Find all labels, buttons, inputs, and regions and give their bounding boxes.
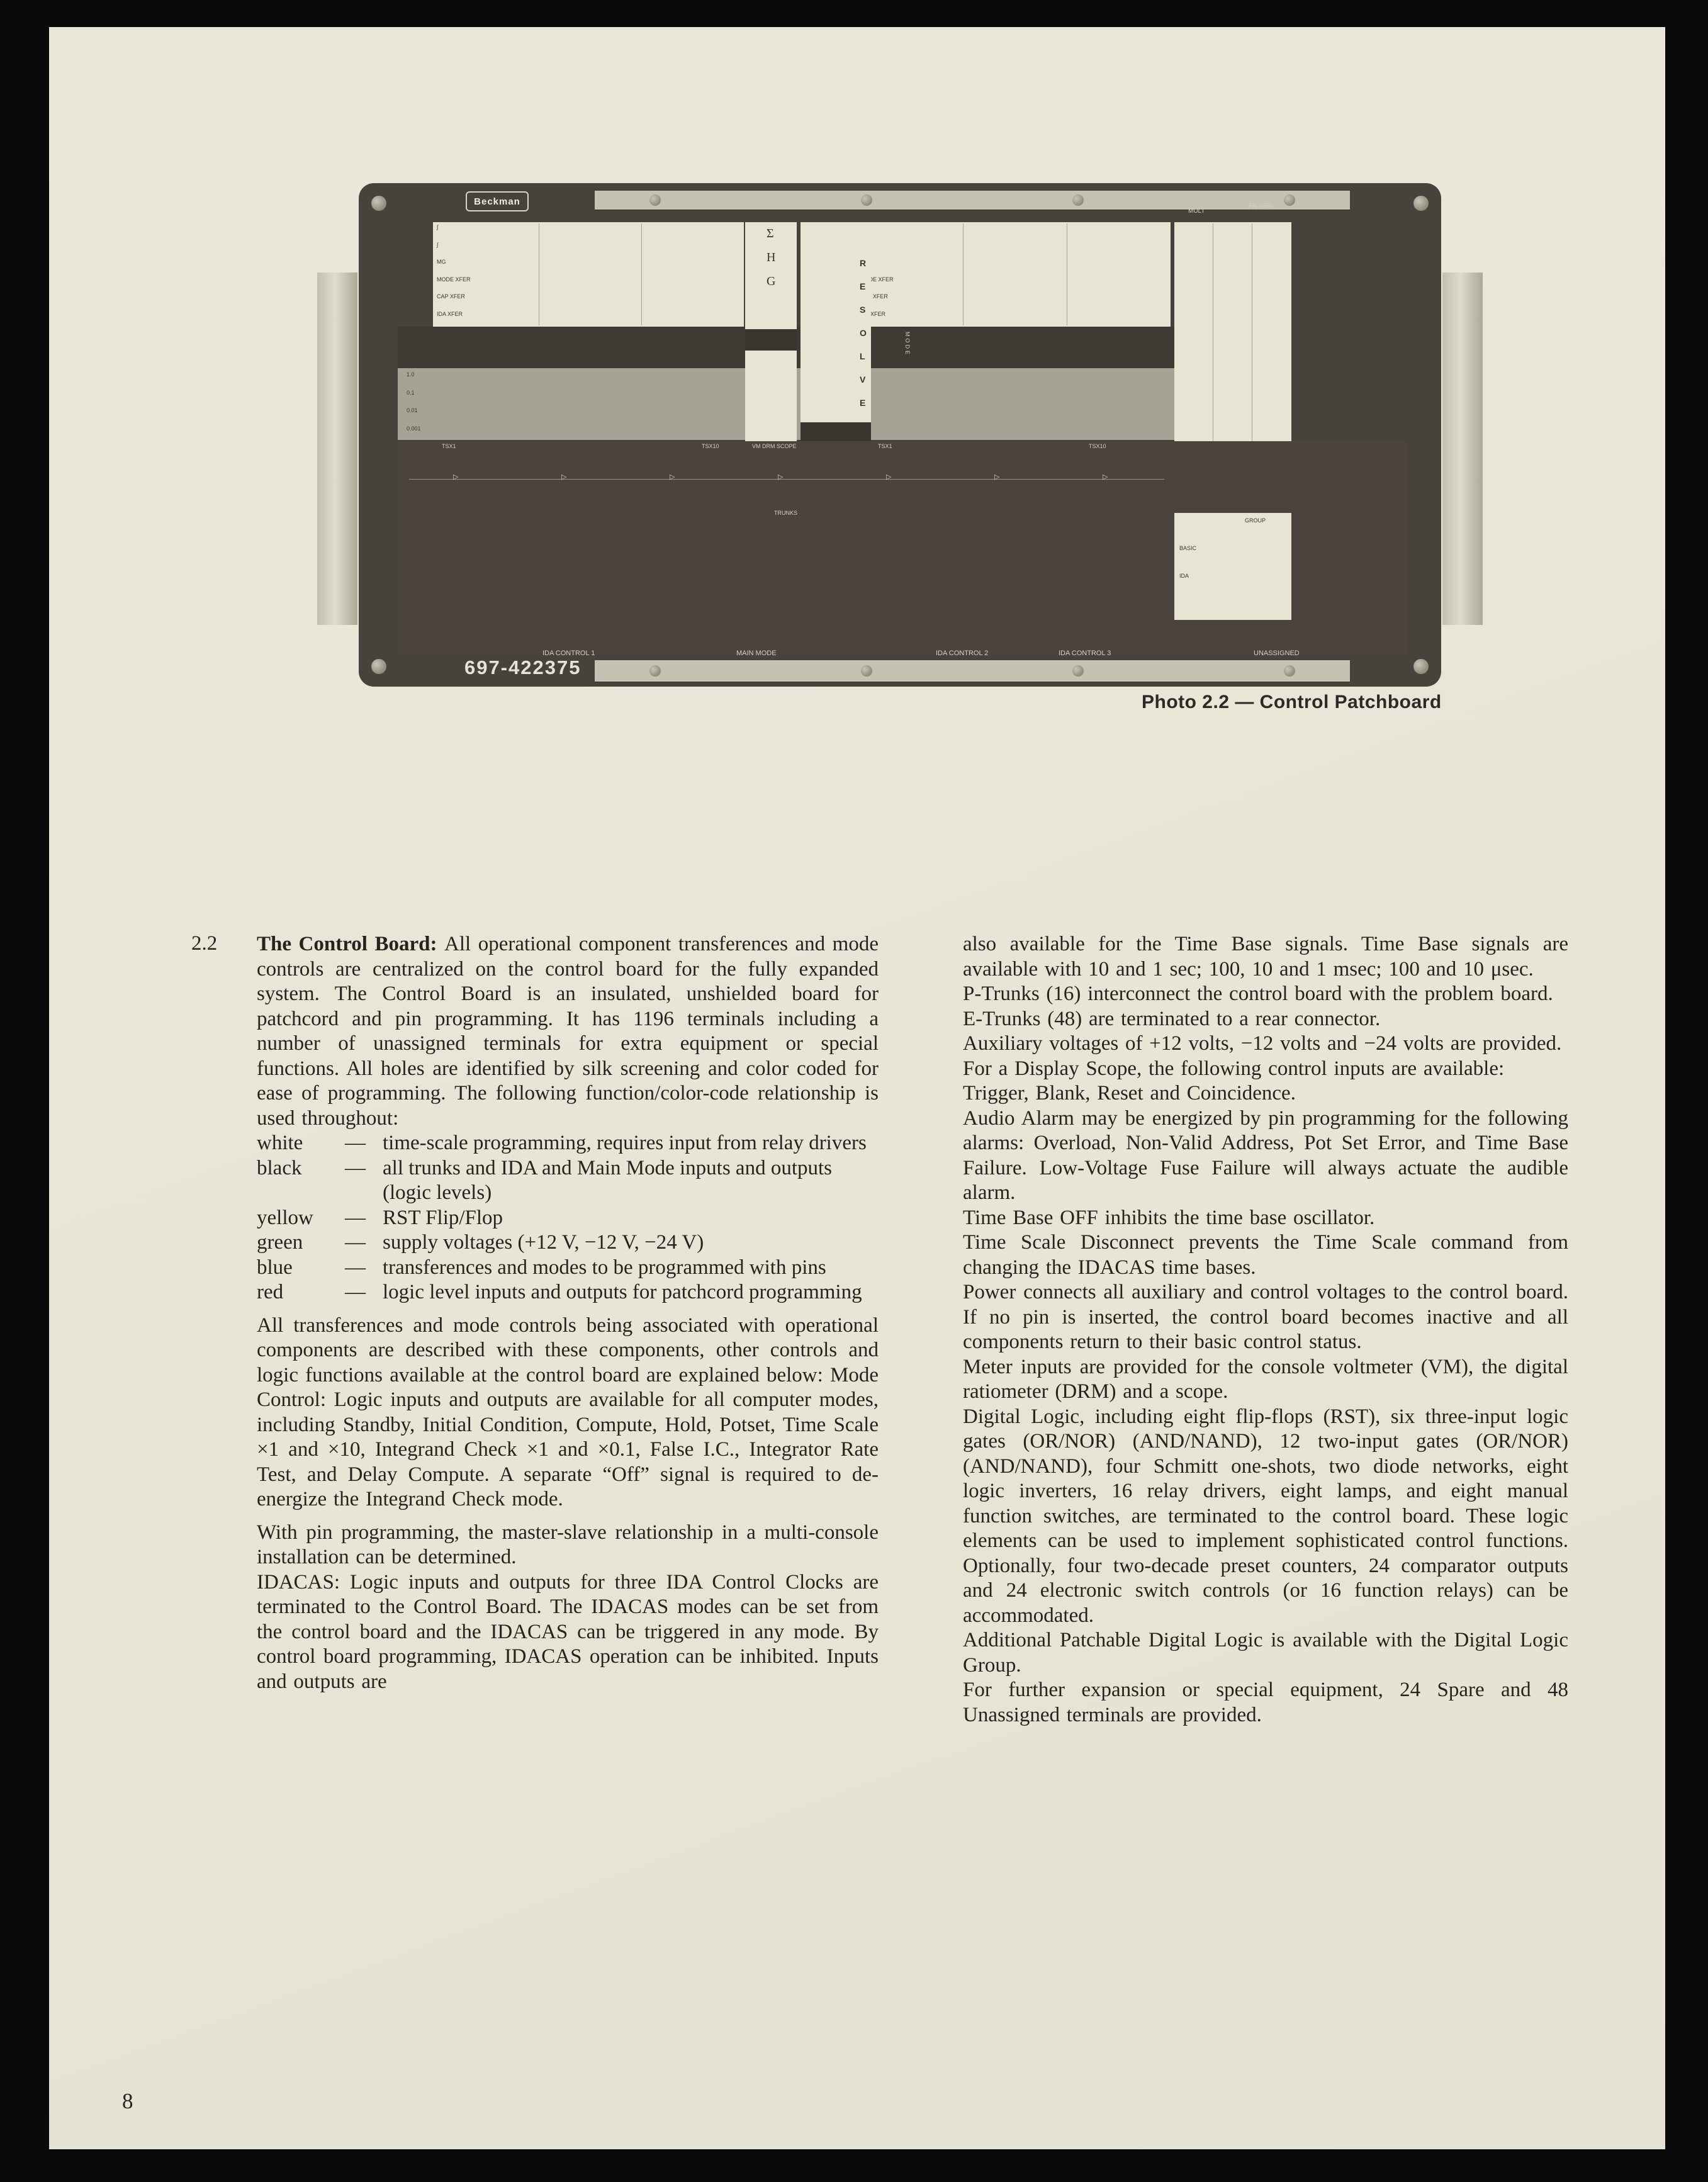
paragraph: E-Trunks (48) are terminated to a rear c… [963,1007,1568,1032]
color-code-item: yellow—RST Flip/Flop [257,1206,879,1231]
photo-caption: Photo 2.2 — Control Patchboard [1142,692,1442,713]
board-label: UNASSIGNED [1254,650,1300,657]
color-name: yellow [257,1206,345,1231]
dash: — [345,1156,383,1206]
screw-icon [1413,659,1429,674]
color-code-item: red—logic level inputs and outputs for p… [257,1280,879,1305]
board-label: TSX10 [1089,444,1106,449]
screw-icon [1072,665,1084,677]
board-label: TRUNKS [774,510,797,516]
board-label: 0.001 [407,426,421,432]
board-label: MG [437,259,468,265]
panel-divider [963,223,964,325]
paragraph: Power connects all auxiliary and control… [963,1280,1568,1355]
board-label: Σ [767,227,774,240]
board-part-number: 697-422375 [464,656,582,679]
left-text-column: The Control Board: All operational compo… [257,932,879,1694]
screw-icon [861,194,872,206]
board-label: H [767,251,775,264]
color-code-item: blue—transferences and modes to be progr… [257,1256,879,1281]
page-number: 8 [122,2089,133,2114]
board-label: MULT [1188,208,1205,215]
panel-divider [1067,223,1067,325]
paragraph: Audio Alarm may be energized by pin prog… [963,1106,1568,1206]
color-name: green [257,1230,345,1256]
paragraph: Digital Logic, including eight flip-flop… [963,1405,1568,1629]
board-label: E [860,398,865,407]
board-label: V [860,375,865,384]
brand-plate: Beckman [466,191,529,211]
board-label: IDA CONTROL 2 [936,650,988,657]
paragraph: also available for the Time Base signals… [963,932,1568,982]
board-label: IDA [1179,573,1189,579]
board-label: ▷ [994,474,999,481]
dash: — [345,1230,383,1256]
screw-icon [1072,194,1084,206]
board-label: IDA XFER [437,312,468,317]
color-code-item: green—supply voltages (+12 V, −12 V, −24… [257,1230,879,1256]
color-name: red [257,1280,345,1305]
screw-icon [371,196,386,211]
board-label: ▷ [1103,474,1108,481]
screw-icon [1284,194,1295,206]
board-label: L [860,352,865,361]
right-text-column: also available for the Time Base signals… [963,932,1568,1728]
right-handle [1442,273,1483,625]
board-label: ▷ [561,474,566,481]
dash: — [345,1206,383,1231]
board-label: ▷ [778,474,783,481]
left-handle [317,273,357,625]
color-name: black [257,1156,345,1206]
color-description: RST Flip/Flop [383,1206,879,1231]
paragraph: P-Trunks (16) interconnect the control b… [963,982,1568,1007]
board-label: GROUP [1245,518,1266,524]
top-handle-bar [595,191,1350,210]
board-label: TSX10 [702,444,719,449]
screw-icon [861,665,872,677]
panel-divider [539,223,539,325]
board-label: 0.01 [407,408,418,413]
board-label: S [860,305,865,314]
color-code-list: white—time-scale programming, requires i… [257,1131,879,1305]
screw-icon [1413,196,1429,211]
board-label: FN GEN [1249,203,1273,210]
screw-icon [649,194,661,206]
paragraph: With pin programming, the master-slave r… [257,1521,879,1570]
color-description: transferences and modes to be programmed… [383,1256,879,1281]
paragraph: Time Scale Disconnect prevents the Time … [963,1230,1568,1280]
board-label: ∫ [437,225,468,230]
dash: — [345,1256,383,1281]
scanned-manual-page: { "page": { "number": "8" }, "photo": { … [0,0,1708,2182]
panel-divider [641,223,642,325]
board-label: E [860,282,865,291]
color-description: logic level inputs and outputs for patch… [383,1280,879,1305]
board-label: TSX1 [878,444,892,449]
paragraph: Trigger, Blank, Reset and Coincidence. [963,1081,1568,1106]
paragraph: Additional Patchable Digital Logic is av… [963,1628,1568,1678]
board-label: MODE XFER [437,277,468,283]
color-name: white [257,1131,345,1156]
color-description: all trunks and IDA and Main Mode inputs … [383,1156,879,1206]
board-label: ▷ [453,474,458,481]
paragraph: For a Display Scope, the following contr… [963,1057,1568,1082]
section-number: 2.2 [191,932,217,955]
board-label: IDA CONTROL 3 [1059,650,1111,657]
board-label: 0.1 [407,390,415,396]
color-description: supply voltages (+12 V, −12 V, −24 V) [383,1230,879,1256]
bottom-handle-bar [595,660,1350,682]
board-label: 1.0 [407,372,415,378]
board-label: VM DRM SCOPE [752,444,797,449]
panel-top-left [433,222,744,327]
board-label: BASIC [1179,546,1196,551]
board-label: G [767,275,775,288]
paragraph: For further expansion or special equipme… [963,1678,1568,1728]
screw-icon [649,665,661,677]
board-label: MODE [904,332,910,366]
panel-top-right [856,222,1171,327]
board-label: TSX1 [442,444,456,449]
color-code-item: black—all trunks and IDA and Main Mode i… [257,1156,879,1206]
color-description: time-scale programming, requires input f… [383,1131,879,1156]
dash: — [345,1131,383,1156]
board-label: MAIN MODE [736,650,777,657]
board-label: ▷ [886,474,891,481]
board-label: R [860,259,866,267]
screw-icon [371,659,386,674]
panel-bottom-right [1174,513,1291,620]
paragraph: The Control Board: All operational compo… [257,932,879,1131]
paragraph: Auxiliary voltages of +12 volts, −12 vol… [963,1032,1568,1057]
dark-patch [745,329,797,351]
dash: — [345,1280,383,1305]
control-patchboard-photo: Beckman∫∫MGMODE XFERCAP XFERIDA XFER∫MGM… [359,183,1441,687]
screw-icon [1284,665,1295,677]
manual-page: Beckman∫∫MGMODE XFERCAP XFERIDA XFER∫MGM… [49,27,1665,2149]
paragraph-lead: The Control Board: [257,933,444,955]
color-code-item: white—time-scale programming, requires i… [257,1131,879,1156]
paragraph: IDACAS: Logic inputs and outputs for thr… [257,1570,879,1695]
board-label: ▷ [670,474,675,481]
color-name: blue [257,1256,345,1281]
paragraph: All transferences and mode controls bein… [257,1313,879,1512]
paragraph: Time Base OFF inhibits the time base osc… [963,1206,1568,1231]
paragraph: Meter inputs are provided for the consol… [963,1355,1568,1405]
board-label: ∫ [437,242,468,248]
board-label: O [860,329,867,337]
diode-line [409,479,1164,480]
board-label: CAP XFER [437,294,468,300]
